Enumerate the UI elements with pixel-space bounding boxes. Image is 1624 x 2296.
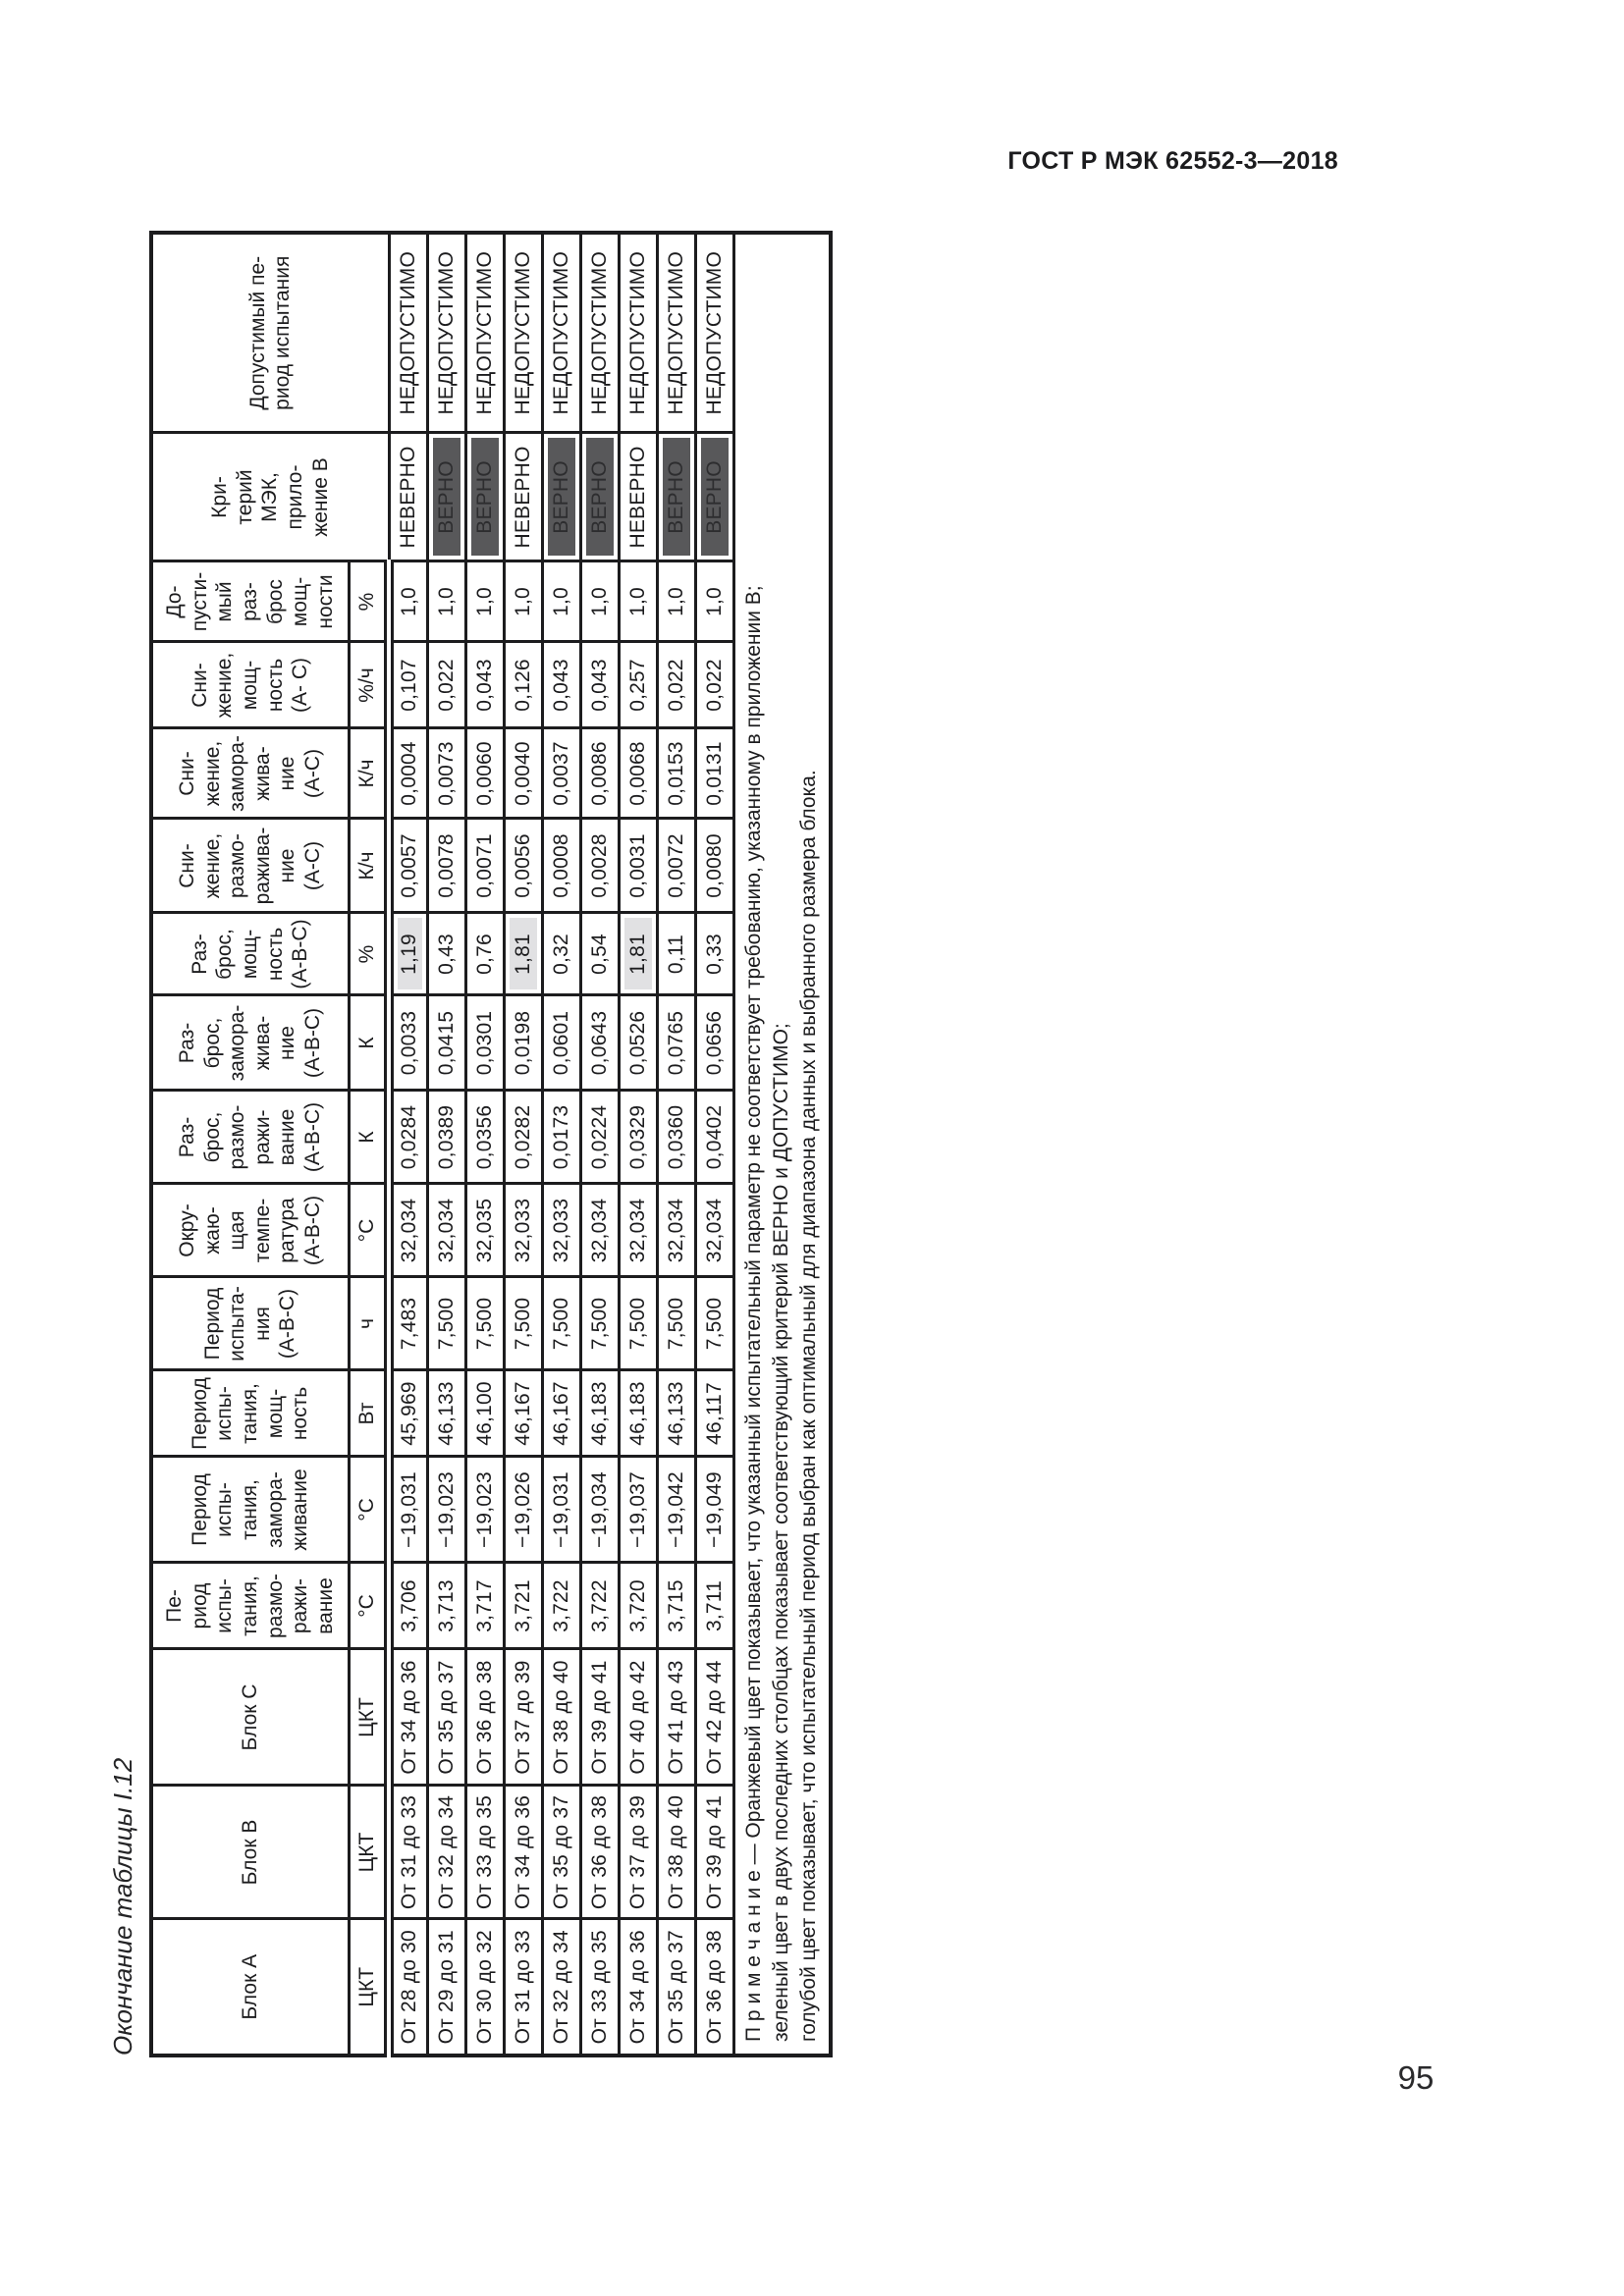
data-cell: 32,034 — [657, 1184, 695, 1277]
column-header: Блок А — [151, 1919, 349, 2056]
data-cell: 3,713 — [427, 1563, 465, 1649]
data-cell: 3,722 — [580, 1563, 619, 1649]
data-cell: 7,500 — [695, 1277, 733, 1370]
unit-cell: °С — [349, 1457, 389, 1563]
data-cell: 0,0056 — [504, 819, 542, 913]
data-cell: 7,500 — [427, 1277, 465, 1370]
data-cell: −19,031 — [389, 1457, 427, 1563]
data-cell: 0,0173 — [542, 1091, 580, 1184]
data-cell: 0,0078 — [427, 819, 465, 913]
data-cell: −19,042 — [657, 1457, 695, 1563]
column-header: Период испы- тания, замора- живание — [151, 1457, 349, 1563]
data-cell: 0,0360 — [657, 1091, 695, 1184]
table-row: От 28 до 30От 31 до 33От 34 до 363,706−1… — [389, 233, 427, 2056]
data-cell: 0,0656 — [695, 995, 733, 1091]
data-cell: 0,107 — [389, 642, 427, 728]
column-header: До- пусти- мый раз- брос мощ- ности — [151, 561, 349, 642]
data-cell: 0,0131 — [695, 728, 733, 819]
data-cell: От 36 до 38 — [695, 1919, 733, 2056]
data-cell: НЕДОПУСТИМО — [619, 233, 657, 433]
data-cell: 1,0 — [465, 561, 504, 642]
data-cell: 7,500 — [504, 1277, 542, 1370]
data-cell: 0,0301 — [465, 995, 504, 1091]
data-cell: НЕВЕРНО — [389, 433, 427, 561]
data-cell: 1,0 — [580, 561, 619, 642]
data-cell: 0,0153 — [657, 728, 695, 819]
data-cell: От 39 до 41 — [580, 1649, 619, 1786]
data-cell: 0,0004 — [389, 728, 427, 819]
unit-cell: ЦКТ — [349, 1919, 389, 2056]
data-cell: 0,0601 — [542, 995, 580, 1091]
data-cell: НЕВЕРНО — [504, 433, 542, 561]
data-cell: От 37 до 39 — [504, 1649, 542, 1786]
data-cell: НЕВЕРНО — [619, 433, 657, 561]
data-cell: 46,183 — [619, 1370, 657, 1457]
unit-cell: ЦКТ — [349, 1786, 389, 1919]
table-row: От 31 до 33От 34 до 36От 37 до 393,721−1… — [504, 233, 542, 2056]
data-cell: НЕДОПУСТИМО — [427, 233, 465, 433]
document-page: ГОСТ Р МЭК 62552-3—2018 Окончание таблиц… — [0, 0, 1624, 2296]
data-cell: 0,54 — [580, 913, 619, 995]
data-cell: 0,33 — [695, 913, 733, 995]
data-cell: От 42 до 44 — [695, 1649, 733, 1786]
results-table: Блок АБлок ВБлок СПе- риод испы- тания, … — [149, 231, 833, 2057]
data-cell: 7,500 — [580, 1277, 619, 1370]
column-header: Допустимый пе- риод испытания — [151, 233, 389, 433]
data-cell: 7,500 — [542, 1277, 580, 1370]
data-cell: 0,0526 — [619, 995, 657, 1091]
data-cell: 32,034 — [427, 1184, 465, 1277]
data-cell: От 36 до 38 — [580, 1786, 619, 1919]
data-cell: 0,11 — [657, 913, 695, 995]
data-cell: −19,049 — [695, 1457, 733, 1563]
column-header: Период испы- тания, мощ- ность — [151, 1370, 349, 1457]
data-cell: ВЕРНО — [657, 433, 695, 561]
data-cell: ВЕРНО — [580, 433, 619, 561]
data-cell: ВЕРНО — [695, 433, 733, 561]
data-cell: 0,0037 — [542, 728, 580, 819]
data-cell: −19,023 — [465, 1457, 504, 1563]
data-cell: 1,0 — [504, 561, 542, 642]
data-cell: −19,037 — [619, 1457, 657, 1563]
data-cell: 46,167 — [504, 1370, 542, 1457]
data-cell: От 35 до 37 — [427, 1649, 465, 1786]
column-header: Сни- жение, мощ- ность (А- С) — [151, 642, 349, 728]
data-cell: 1,0 — [389, 561, 427, 642]
data-cell: 3,711 — [695, 1563, 733, 1649]
unit-cell: К/ч — [349, 728, 389, 819]
data-cell: 0,0071 — [465, 819, 504, 913]
unit-cell: % — [349, 913, 389, 995]
data-cell: 45,969 — [389, 1370, 427, 1457]
unit-cell: Вт — [349, 1370, 389, 1457]
data-cell: 0,0282 — [504, 1091, 542, 1184]
table-row: От 32 до 34От 35 до 37От 38 до 403,722−1… — [542, 233, 580, 2056]
data-cell: 0,0415 — [427, 995, 465, 1091]
data-cell: 0,043 — [542, 642, 580, 728]
data-cell: 3,717 — [465, 1563, 504, 1649]
data-cell: 46,133 — [657, 1370, 695, 1457]
data-cell: 7,483 — [389, 1277, 427, 1370]
data-cell: −19,031 — [542, 1457, 580, 1563]
table-note: П р и м е ч а н и е — Оранжевый цвет пок… — [733, 233, 831, 2056]
data-cell: От 31 до 33 — [389, 1786, 427, 1919]
data-cell: 3,721 — [504, 1563, 542, 1649]
column-header: Блок В — [151, 1786, 349, 1919]
data-cell: 3,706 — [389, 1563, 427, 1649]
column-header: Пе- риод испы- тания, размо- ражи- вание — [151, 1563, 349, 1649]
data-cell: 0,0402 — [695, 1091, 733, 1184]
data-cell: 0,0072 — [657, 819, 695, 913]
standard-designation-header: ГОСТ Р МЭК 62552-3—2018 — [946, 147, 1338, 176]
data-cell: 3,715 — [657, 1563, 695, 1649]
data-cell: От 37 до 39 — [619, 1786, 657, 1919]
data-cell: 1,0 — [542, 561, 580, 642]
data-cell: 0,0031 — [619, 819, 657, 913]
unit-cell: К — [349, 1091, 389, 1184]
data-cell: От 36 до 38 — [465, 1649, 504, 1786]
data-cell: 0,022 — [427, 642, 465, 728]
data-cell: От 30 до 32 — [465, 1919, 504, 2056]
data-cell: От 39 до 41 — [695, 1786, 733, 1919]
table-row: От 29 до 31От 32 до 34От 35 до 373,713−1… — [427, 233, 465, 2056]
data-cell: От 41 до 43 — [657, 1649, 695, 1786]
data-cell: 32,034 — [619, 1184, 657, 1277]
data-cell: 32,034 — [580, 1184, 619, 1277]
data-cell: 0,043 — [580, 642, 619, 728]
data-cell: 1,19 — [389, 913, 427, 995]
data-cell: От 32 до 34 — [542, 1919, 580, 2056]
data-cell: От 34 до 36 — [619, 1919, 657, 2056]
data-cell: 0,0068 — [619, 728, 657, 819]
data-cell: 0,0329 — [619, 1091, 657, 1184]
data-cell: 0,0086 — [580, 728, 619, 819]
data-cell: −19,026 — [504, 1457, 542, 1563]
data-cell: 0,022 — [657, 642, 695, 728]
data-cell: От 38 до 40 — [542, 1649, 580, 1786]
data-cell: 32,033 — [504, 1184, 542, 1277]
data-cell: 32,034 — [695, 1184, 733, 1277]
data-cell: 1,0 — [427, 561, 465, 642]
data-cell: 0,0389 — [427, 1091, 465, 1184]
data-cell: НЕДОПУСТИМО — [580, 233, 619, 433]
column-header: Раз- брос, размо- ражи- вание (А-В-С) — [151, 1091, 349, 1184]
data-cell: 1,0 — [619, 561, 657, 642]
data-cell: 0,0765 — [657, 995, 695, 1091]
data-cell: 7,500 — [465, 1277, 504, 1370]
data-cell: 32,035 — [465, 1184, 504, 1277]
unit-cell: ч — [349, 1277, 389, 1370]
data-cell: 1,0 — [657, 561, 695, 642]
data-cell: От 35 до 37 — [657, 1919, 695, 2056]
landscape-canvas: Окончание таблицы I.12 Блок АБлок ВБлок … — [98, 232, 839, 2057]
column-header: Кри- терий МЭК, прило- жение В — [151, 433, 389, 561]
unit-cell: %/ч — [349, 642, 389, 728]
data-cell: 0,0040 — [504, 728, 542, 819]
unit-cell: °С — [349, 1184, 389, 1277]
data-cell: 1,0 — [695, 561, 733, 642]
table-row: От 35 до 37От 38 до 40От 41 до 433,715−1… — [657, 233, 695, 2056]
data-cell: 0,0198 — [504, 995, 542, 1091]
data-cell: 0,022 — [695, 642, 733, 728]
data-cell: 1,81 — [504, 913, 542, 995]
data-cell: 1,81 — [619, 913, 657, 995]
data-cell: От 32 до 34 — [427, 1786, 465, 1919]
data-cell: 3,722 — [542, 1563, 580, 1649]
data-cell: 0,0028 — [580, 819, 619, 913]
data-cell: 46,100 — [465, 1370, 504, 1457]
data-cell: От 34 до 36 — [389, 1649, 427, 1786]
data-cell: 0,0356 — [465, 1091, 504, 1184]
data-cell: 46,167 — [542, 1370, 580, 1457]
unit-cell: % — [349, 561, 389, 642]
unit-cell: К/ч — [349, 819, 389, 913]
data-cell: 0,0073 — [427, 728, 465, 819]
column-header: Блок С — [151, 1649, 349, 1786]
data-cell: 46,183 — [580, 1370, 619, 1457]
table-row: От 33 до 35От 36 до 38От 39 до 413,722−1… — [580, 233, 619, 2056]
data-cell: 0,126 — [504, 642, 542, 728]
table-caption: Окончание таблицы I.12 — [98, 232, 149, 2057]
table-row: От 34 до 36От 37 до 39От 40 до 423,720−1… — [619, 233, 657, 2056]
data-cell: 0,76 — [465, 913, 504, 995]
data-cell: 46,133 — [427, 1370, 465, 1457]
data-cell: 0,0008 — [542, 819, 580, 913]
data-cell: От 35 до 37 — [542, 1786, 580, 1919]
data-cell: 0,0033 — [389, 995, 427, 1091]
column-header: Сни- жение, замора- жива- ние (А-С) — [151, 728, 349, 819]
column-header: Окру- жаю- щая темпе- ратура (А-В-С) — [151, 1184, 349, 1277]
data-cell: 32,033 — [542, 1184, 580, 1277]
data-cell: 0,0284 — [389, 1091, 427, 1184]
data-cell: НЕДОПУСТИМО — [542, 233, 580, 433]
data-cell: −19,034 — [580, 1457, 619, 1563]
data-cell: 0,0224 — [580, 1091, 619, 1184]
data-cell: 7,500 — [619, 1277, 657, 1370]
data-cell: −19,023 — [427, 1457, 465, 1563]
column-header: Раз- брос, замора- жива- ние (А-В-С) — [151, 995, 349, 1091]
data-cell: НЕДОПУСТИМО — [657, 233, 695, 433]
unit-cell: ЦКТ — [349, 1649, 389, 1786]
data-cell: ВЕРНО — [427, 433, 465, 561]
data-cell: 0,043 — [465, 642, 504, 728]
column-header: Раз- брос, мощ- ность (А-В-С) — [151, 913, 349, 995]
data-cell: 0,0643 — [580, 995, 619, 1091]
data-cell: 3,720 — [619, 1563, 657, 1649]
data-cell: ВЕРНО — [542, 433, 580, 561]
rotated-table-region: Окончание таблицы I.12 Блок АБлок ВБлок … — [98, 232, 839, 2057]
unit-cell: К — [349, 995, 389, 1091]
data-cell: От 38 до 40 — [657, 1786, 695, 1919]
data-cell: НЕДОПУСТИМО — [465, 233, 504, 433]
data-cell: От 40 до 42 — [619, 1649, 657, 1786]
data-cell: От 34 до 36 — [504, 1786, 542, 1919]
table-row: От 36 до 38От 39 до 41От 42 до 443,711−1… — [695, 233, 733, 2056]
data-cell: От 29 до 31 — [427, 1919, 465, 2056]
table-row: От 30 до 32От 33 до 35От 36 до 383,717−1… — [465, 233, 504, 2056]
data-cell: 0,43 — [427, 913, 465, 995]
data-cell: НЕДОПУСТИМО — [695, 233, 733, 433]
data-cell: 0,0057 — [389, 819, 427, 913]
column-header: Период испыта- ния (А-В-С) — [151, 1277, 349, 1370]
data-cell: От 28 до 30 — [389, 1919, 427, 2056]
data-cell: От 33 до 35 — [465, 1786, 504, 1919]
data-cell: 32,034 — [389, 1184, 427, 1277]
data-cell: ВЕРНО — [465, 433, 504, 561]
data-cell: 0,0060 — [465, 728, 504, 819]
data-cell: От 31 до 33 — [504, 1919, 542, 2056]
data-cell: 46,117 — [695, 1370, 733, 1457]
data-cell: 0,0080 — [695, 819, 733, 913]
data-cell: НЕДОПУСТИМО — [504, 233, 542, 433]
column-header: Сни- жение, размо- ражива- ние (А-С) — [151, 819, 349, 913]
page-number: 95 — [1386, 2059, 1445, 2097]
data-cell: 7,500 — [657, 1277, 695, 1370]
unit-cell: °С — [349, 1563, 389, 1649]
data-cell: НЕДОПУСТИМО — [389, 233, 427, 433]
data-cell: От 33 до 35 — [580, 1919, 619, 2056]
data-cell: 0,32 — [542, 913, 580, 995]
data-cell: 0,257 — [619, 642, 657, 728]
